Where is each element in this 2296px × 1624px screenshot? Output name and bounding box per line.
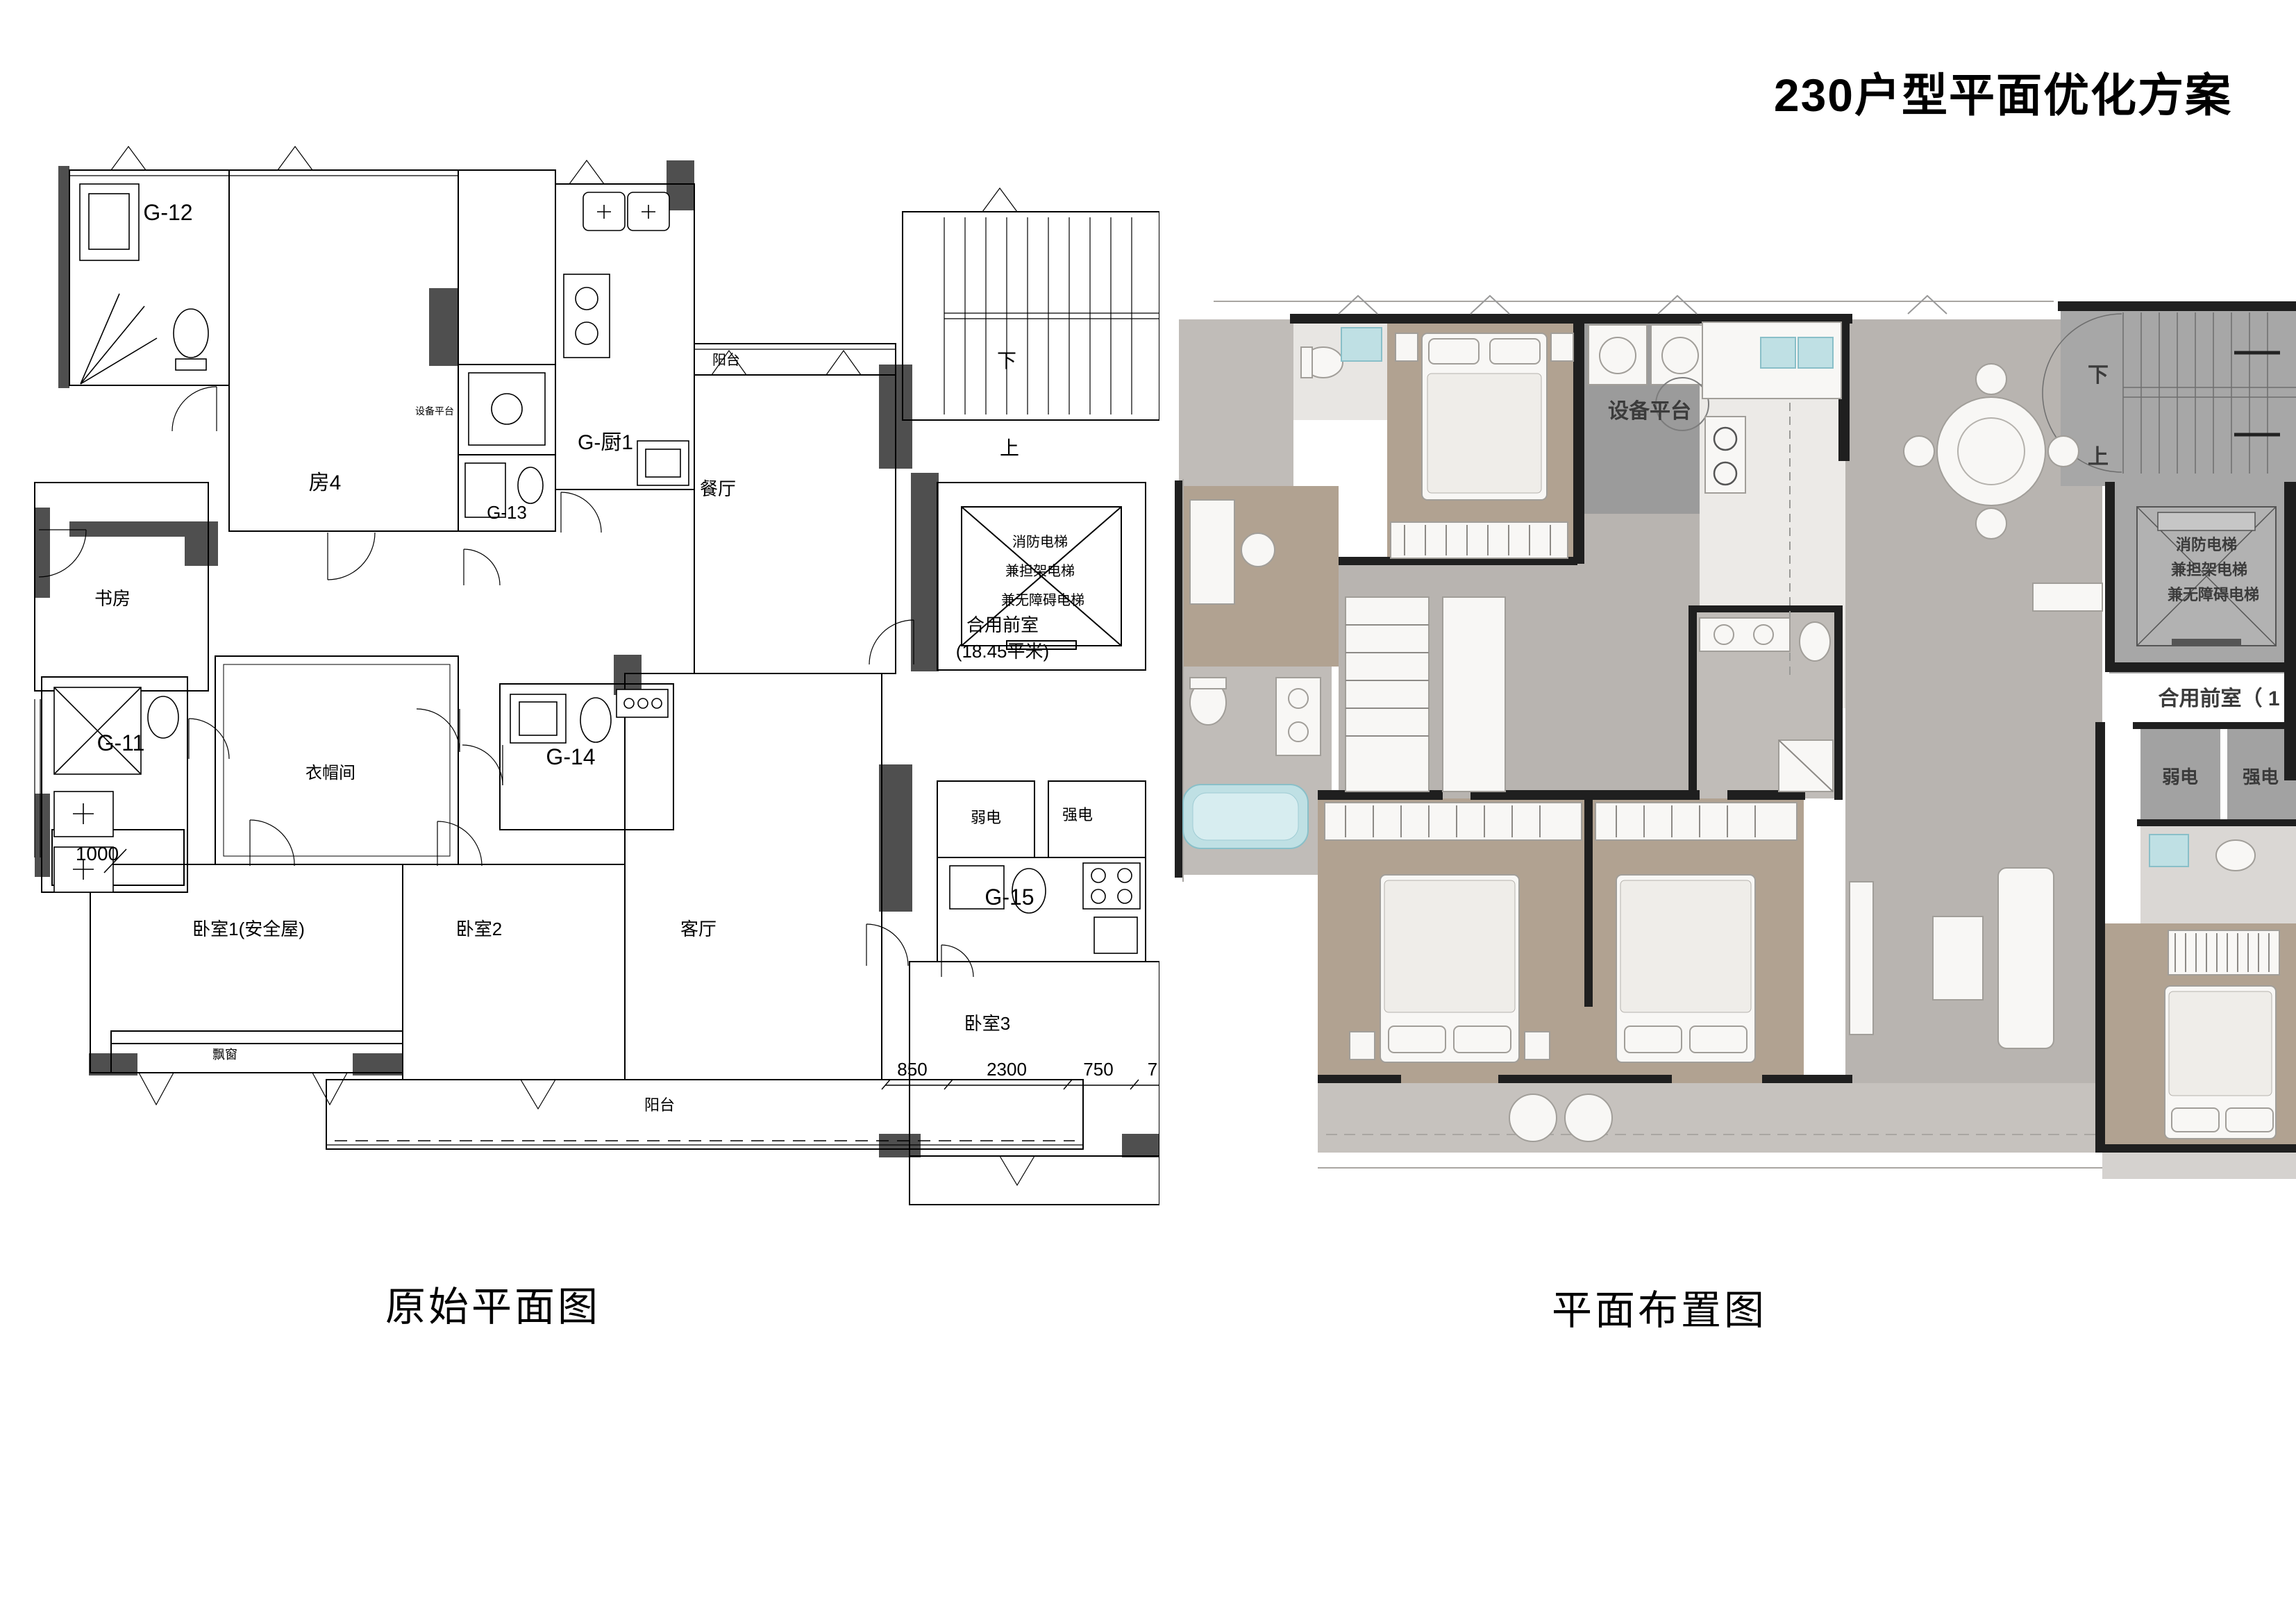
label-equip-platform: 设备平台 — [1608, 399, 1691, 423]
label-g13: G-13 — [487, 502, 527, 523]
label-strong: 强电 — [2243, 767, 2279, 787]
label-elev-2: 兼担架电梯 — [1005, 563, 1075, 579]
label-strong: 强电 — [1062, 806, 1093, 823]
dimension-line — [882, 1080, 1159, 1089]
label-dim-850: 850 — [897, 1059, 927, 1080]
label-elev-2: 兼担架电梯 — [2171, 561, 2247, 578]
label-dim-750: 750 — [1083, 1059, 1113, 1080]
original-floor-plan: G-12房4设备平台G-13G-厨1阳台餐厅下上消防电梯兼担架电梯兼无障碍电梯合… — [14, 135, 1159, 1260]
furnished-floor-plan: 设备平台消防电梯兼担架电梯兼无障碍电梯合用前室（ 1弱电强电下上 — [1172, 292, 2296, 1180]
label-study: 书房 — [94, 588, 131, 609]
label-bed1: 卧室1(安全屋) — [192, 919, 305, 939]
label-down: 下 — [2088, 364, 2109, 387]
label-g11: G-11 — [97, 730, 145, 755]
label-balcony-top: 阳台 — [712, 352, 740, 368]
page-title: 230户型平面优化方案 — [1774, 58, 2232, 125]
label-g14: G-14 — [546, 744, 595, 769]
label-equip-small: 设备平台 — [415, 405, 454, 417]
label-balcony-bottom: 阳台 — [644, 1096, 675, 1114]
door-arcs — [39, 387, 973, 977]
label-elev-1: 消防电梯 — [1012, 534, 1068, 550]
label-dim-1000: 1000 — [76, 843, 119, 864]
stair-treads — [944, 217, 1159, 415]
caption-layout-plan: 平面布置图 — [1444, 1278, 1875, 1336]
left-plan-fixtures — [54, 184, 1140, 953]
label-up: 上 — [1000, 437, 1019, 459]
label-kitchen1: G-厨1 — [578, 431, 633, 454]
label-elev-1: 消防电梯 — [2176, 536, 2237, 553]
label-g12: G-12 — [143, 200, 192, 225]
label-lobby: 合用前室（ 1 — [2158, 687, 2279, 710]
label-weak: 弱电 — [971, 809, 1001, 826]
floor-plan-slide: { "title": "230户型平面优化方案", "colors": { "w… — [0, 0, 2296, 1624]
label-lobby-1: 合用前室 — [966, 614, 1039, 635]
label-down: 下 — [997, 350, 1016, 371]
caption-original-plan: 原始平面图 — [278, 1274, 708, 1332]
label-living: 客厅 — [680, 919, 717, 939]
label-elev-3: 兼无障碍电梯 — [2168, 586, 2259, 603]
label-dim-7: 7 — [1148, 1059, 1157, 1080]
label-elev-3: 兼无障碍电梯 — [1001, 592, 1084, 608]
label-dining: 餐厅 — [700, 478, 736, 499]
label-lobby-2: (18.45平米) — [956, 641, 1049, 662]
label-cloak: 衣帽间 — [305, 764, 355, 782]
label-weak: 弱电 — [2162, 767, 2198, 787]
label-bed2: 卧室2 — [456, 919, 502, 939]
label-room4: 房4 — [309, 471, 342, 494]
label-g15: G-15 — [984, 885, 1034, 910]
label-bed3: 卧室3 — [964, 1013, 1010, 1034]
label-baywindow: 飘窗 — [212, 1048, 237, 1062]
label-dim-2300: 2300 — [987, 1059, 1027, 1080]
label-up: 上 — [2088, 446, 2109, 469]
